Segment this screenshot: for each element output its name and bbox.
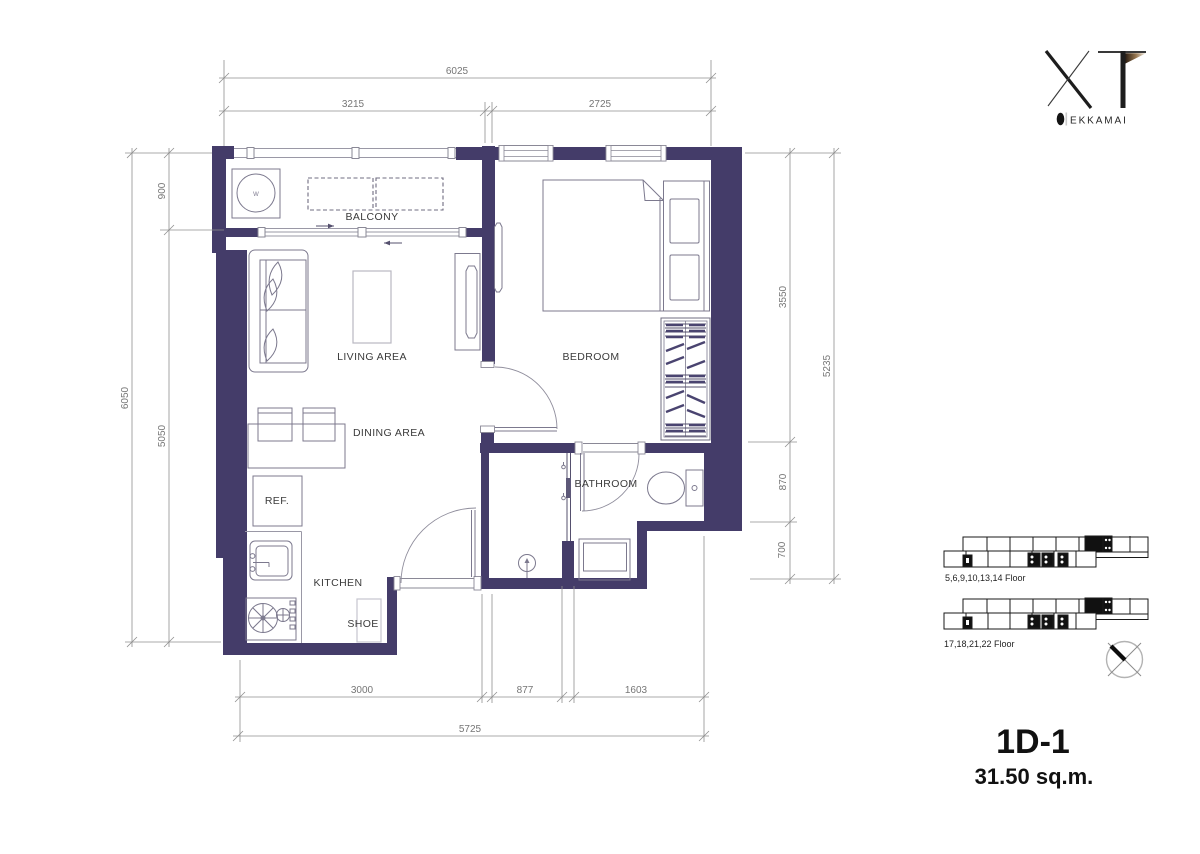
svg-text:REF.: REF. [265, 495, 289, 507]
svg-text:6050: 6050 [120, 386, 131, 409]
svg-text:1D-1: 1D-1 [996, 723, 1070, 761]
svg-text:W: W [253, 192, 259, 198]
svg-text:5725: 5725 [459, 724, 482, 735]
svg-text:BATHROOM: BATHROOM [574, 478, 637, 490]
svg-text:3215: 3215 [342, 99, 365, 110]
svg-text:31.50 sq.m.: 31.50 sq.m. [975, 764, 1094, 789]
svg-text:6025: 6025 [446, 66, 469, 77]
svg-text:EKKAMAI: EKKAMAI [1070, 116, 1128, 127]
svg-text:DINING AREA: DINING AREA [353, 427, 425, 439]
svg-text:1603: 1603 [625, 685, 648, 696]
svg-text:KITCHEN: KITCHEN [314, 577, 363, 589]
svg-text:5050: 5050 [157, 424, 168, 447]
svg-text:BALCONY: BALCONY [346, 211, 399, 223]
svg-text:2725: 2725 [589, 99, 612, 110]
svg-text:870: 870 [778, 473, 789, 490]
svg-text:LIVING AREA: LIVING AREA [337, 351, 407, 363]
svg-text:900: 900 [157, 182, 168, 199]
svg-text:17,18,21,22 Floor: 17,18,21,22 Floor [944, 639, 1015, 649]
svg-text:5235: 5235 [822, 354, 833, 377]
svg-text:3000: 3000 [351, 685, 374, 696]
svg-text:5,6,9,10,13,14 Floor: 5,6,9,10,13,14 Floor [945, 573, 1026, 583]
svg-text:3550: 3550 [778, 285, 789, 308]
svg-text:SHOE: SHOE [347, 618, 378, 630]
svg-text:BEDROOM: BEDROOM [562, 351, 619, 363]
svg-text:700: 700 [777, 541, 788, 558]
svg-text:877: 877 [517, 685, 534, 696]
